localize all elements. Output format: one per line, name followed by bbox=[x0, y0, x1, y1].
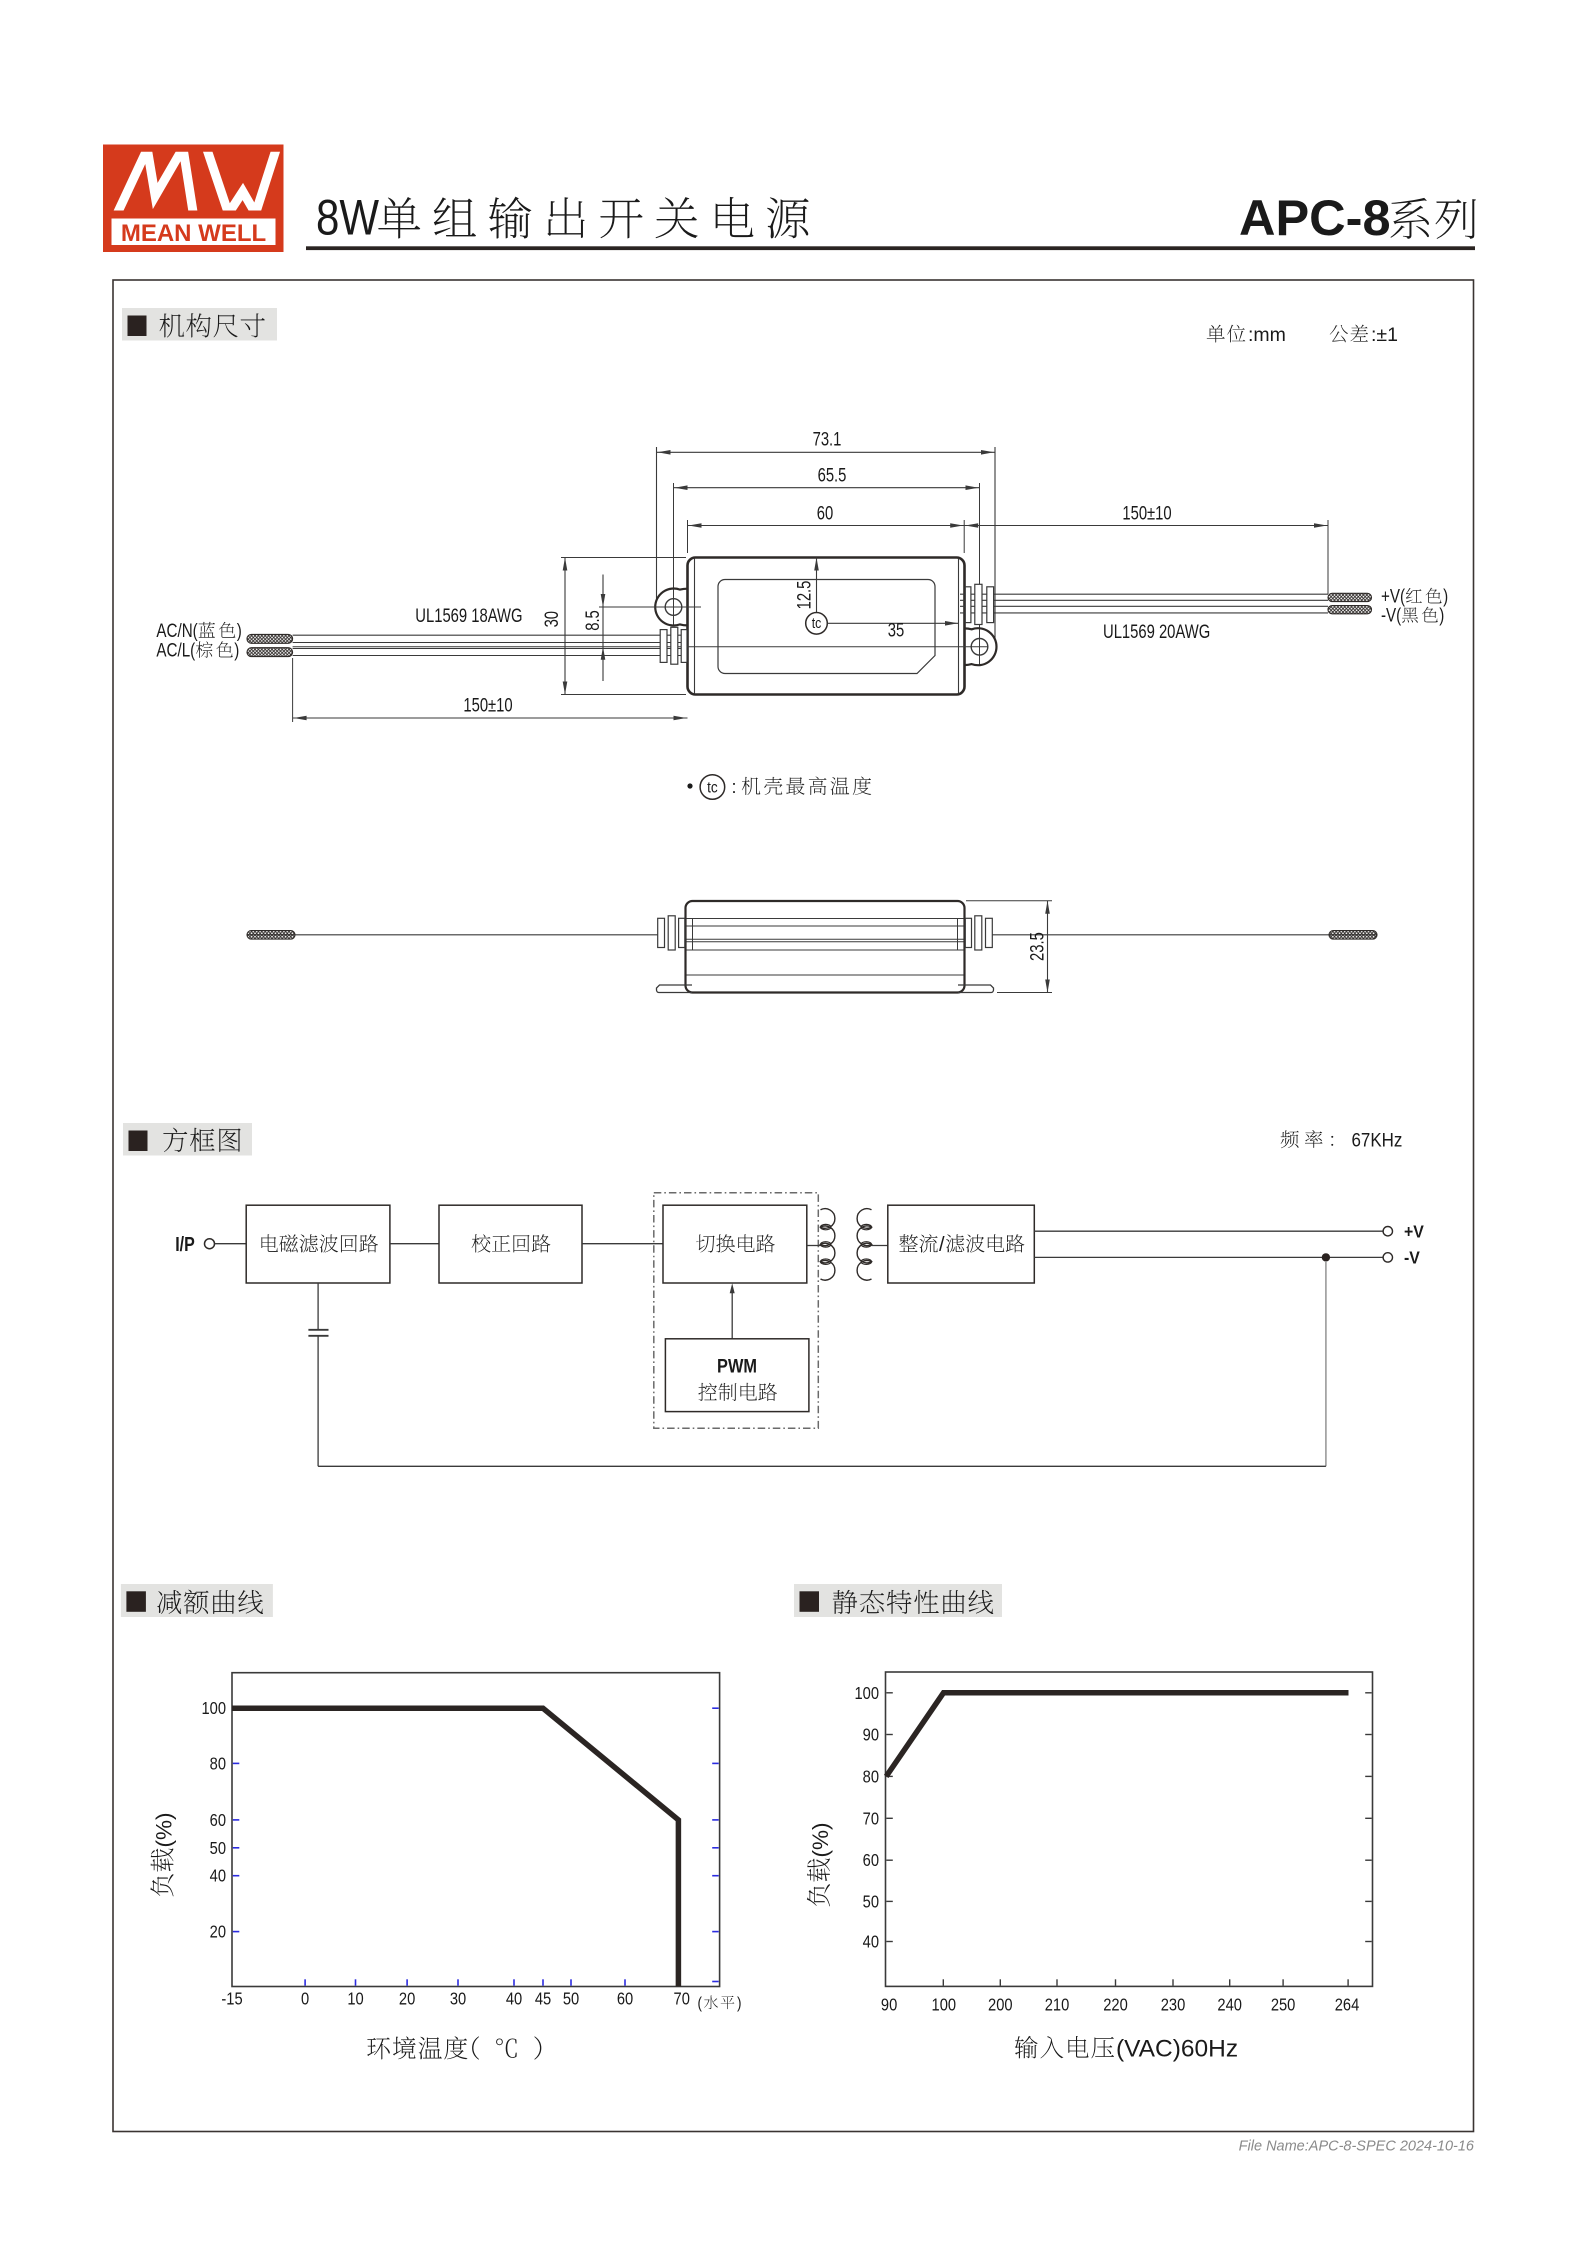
svg-text:20: 20 bbox=[399, 1989, 415, 2008]
svg-text:tc: tc bbox=[707, 780, 718, 797]
svg-text:tc: tc bbox=[812, 615, 822, 631]
svg-text:73.1: 73.1 bbox=[813, 429, 842, 450]
svg-text:35: 35 bbox=[888, 620, 904, 641]
svg-text:65.5: 65.5 bbox=[818, 465, 847, 486]
svg-text:(VAC)60Hz: (VAC)60Hz bbox=[1116, 2036, 1238, 2063]
svg-text::mm: :mm bbox=[1248, 324, 1286, 346]
svg-text:APC-8: APC-8 bbox=[1239, 189, 1391, 246]
svg-text:(%): (%) bbox=[808, 1823, 833, 1858]
svg-text:File Name:APC-8-SPEC 2024-10-1: File Name:APC-8-SPEC 2024-10-16 bbox=[1239, 2139, 1475, 2155]
svg-text:UL1569 18AWG: UL1569 18AWG bbox=[415, 605, 522, 626]
svg-text:8W: 8W bbox=[316, 189, 379, 245]
svg-text:-V(: -V( bbox=[1381, 604, 1401, 626]
svg-text:40: 40 bbox=[863, 1932, 879, 1951]
svg-text:UL1569 20AWG: UL1569 20AWG bbox=[1103, 621, 1210, 642]
svg-text:0: 0 bbox=[301, 1989, 309, 2008]
svg-text:67KHz: 67KHz bbox=[1352, 1128, 1403, 1150]
svg-text:230: 230 bbox=[1161, 1995, 1186, 2014]
svg-text:70: 70 bbox=[674, 1989, 690, 2008]
svg-text:100: 100 bbox=[201, 1699, 226, 1718]
svg-text:-15: -15 bbox=[221, 1989, 242, 2008]
svg-text:60: 60 bbox=[817, 503, 833, 524]
svg-text:(: ( bbox=[698, 1995, 703, 2012]
svg-text:60: 60 bbox=[617, 1989, 633, 2008]
svg-text:60: 60 bbox=[210, 1811, 226, 1830]
svg-text:(%): (%) bbox=[152, 1813, 177, 1848]
svg-text:220: 220 bbox=[1103, 1995, 1128, 2014]
svg-text:-V: -V bbox=[1404, 1248, 1420, 1268]
svg-text:20: 20 bbox=[210, 1922, 226, 1941]
svg-text:80: 80 bbox=[210, 1754, 226, 1773]
svg-text:40: 40 bbox=[506, 1989, 522, 2008]
svg-text:12.5: 12.5 bbox=[794, 581, 815, 610]
svg-text:240: 240 bbox=[1217, 1995, 1242, 2014]
svg-text:100: 100 bbox=[854, 1684, 879, 1703]
svg-text:80: 80 bbox=[863, 1767, 879, 1786]
svg-text:45: 45 bbox=[535, 1989, 551, 2008]
svg-text:+V: +V bbox=[1404, 1222, 1424, 1242]
svg-text:): ) bbox=[234, 639, 239, 661]
svg-text:40: 40 bbox=[210, 1867, 226, 1886]
svg-text:30: 30 bbox=[450, 1989, 466, 2008]
svg-text:264: 264 bbox=[1335, 1995, 1360, 2014]
svg-text:50: 50 bbox=[563, 1989, 579, 2008]
svg-text::: : bbox=[732, 777, 737, 797]
svg-text:200: 200 bbox=[988, 1995, 1013, 2014]
svg-text:8.5: 8.5 bbox=[582, 610, 603, 631]
svg-text:AC/L(: AC/L( bbox=[156, 639, 195, 661]
svg-text:250: 250 bbox=[1271, 1995, 1296, 2014]
svg-text:PWM: PWM bbox=[717, 1355, 757, 1376]
svg-text:30: 30 bbox=[541, 611, 562, 627]
svg-text:100: 100 bbox=[932, 1995, 957, 2014]
svg-text:60: 60 bbox=[863, 1851, 879, 1870]
svg-text:): ) bbox=[1439, 604, 1444, 626]
svg-text::±1: :±1 bbox=[1371, 324, 1398, 346]
svg-text:50: 50 bbox=[210, 1839, 226, 1858]
svg-text:23.5: 23.5 bbox=[1027, 932, 1048, 961]
svg-text:90: 90 bbox=[881, 1995, 897, 2014]
svg-text:/: / bbox=[939, 1234, 945, 1256]
svg-text:I/P: I/P bbox=[175, 1232, 195, 1255]
svg-text:150±10: 150±10 bbox=[463, 695, 512, 716]
svg-text:): ) bbox=[737, 1995, 741, 2012]
svg-text:10: 10 bbox=[347, 1989, 363, 2008]
svg-text:150±10: 150±10 bbox=[1122, 503, 1171, 524]
svg-text:90: 90 bbox=[863, 1725, 879, 1744]
svg-text:210: 210 bbox=[1045, 1995, 1070, 2014]
svg-text:50: 50 bbox=[863, 1892, 879, 1911]
svg-text:MEAN WELL: MEAN WELL bbox=[121, 220, 266, 247]
svg-text:70: 70 bbox=[863, 1809, 879, 1828]
